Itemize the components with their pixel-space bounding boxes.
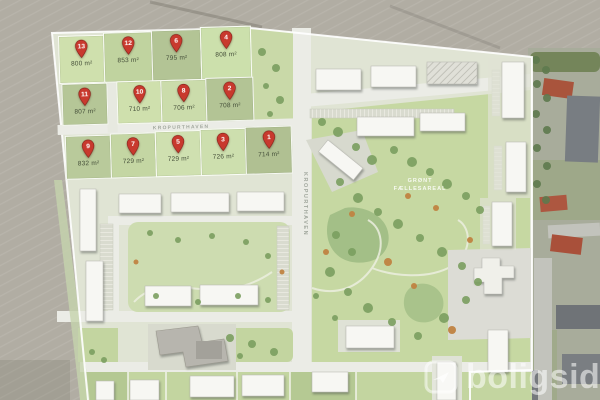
plot-7[interactable]: 7729 m² bbox=[110, 132, 157, 178]
street-label-vertical: KROPURTHAVEN bbox=[302, 172, 308, 236]
pin-number: 11 bbox=[81, 91, 89, 98]
boligsiden-logo-icon bbox=[424, 360, 458, 394]
plot-area-label: 795 m² bbox=[153, 54, 201, 62]
plot-area-label: 708 m² bbox=[207, 102, 253, 110]
map-pin-icon[interactable]: 7 bbox=[126, 137, 141, 156]
map-pin-icon[interactable]: 12 bbox=[121, 36, 136, 55]
map-pin-icon[interactable]: 5 bbox=[171, 134, 186, 153]
map-pin-icon[interactable]: 4 bbox=[218, 30, 233, 49]
plot-area-label: 729 m² bbox=[156, 155, 200, 163]
plot-4[interactable]: 4808 m² bbox=[200, 26, 252, 80]
plot-area-label: 832 m² bbox=[66, 160, 110, 168]
plot-area-label: 808 m² bbox=[202, 51, 251, 59]
pin-number: 12 bbox=[124, 40, 132, 47]
common-area-label-line2: FÆLLESAREAL bbox=[394, 186, 447, 192]
map-pin-icon[interactable]: 10 bbox=[132, 85, 147, 104]
plot-9[interactable]: 9832 m² bbox=[65, 135, 112, 180]
plot-area-label: 800 m² bbox=[60, 60, 104, 68]
pin-number: 3 bbox=[221, 137, 225, 144]
plot-8[interactable]: 8706 m² bbox=[160, 79, 207, 123]
map-pin-icon[interactable]: 11 bbox=[77, 87, 92, 106]
pin-number: 10 bbox=[135, 89, 143, 96]
map-pin-icon[interactable]: 13 bbox=[74, 39, 89, 58]
pin-number: 9 bbox=[86, 143, 90, 150]
map-pin-icon[interactable]: 2 bbox=[222, 81, 237, 100]
plot-area-label: 706 m² bbox=[162, 104, 206, 112]
plot-11[interactable]: 11807 m² bbox=[61, 83, 108, 126]
plot-13[interactable]: 13800 m² bbox=[58, 35, 105, 84]
pin-number: 8 bbox=[182, 88, 186, 95]
plot-3[interactable]: 3726 m² bbox=[200, 128, 247, 176]
pin-number: 6 bbox=[174, 38, 178, 45]
watermark-brand: boligsiden bbox=[466, 360, 600, 394]
pin-number: 2 bbox=[228, 85, 232, 92]
map-pin-icon[interactable]: 3 bbox=[216, 132, 231, 151]
plot-10[interactable]: 10710 m² bbox=[116, 80, 162, 124]
plot-area-label: 853 m² bbox=[105, 56, 152, 64]
common-area-label-line1: GRØNT bbox=[408, 178, 433, 184]
map-pin-icon[interactable]: 8 bbox=[176, 83, 191, 102]
site-plan-map: GRØNT FÆLLESAREAL KROPURTHAVEN KROPURTHA… bbox=[0, 0, 600, 400]
plot-1[interactable]: 1714 m² bbox=[245, 126, 293, 175]
plot-6[interactable]: 6795 m² bbox=[151, 29, 202, 81]
pin-number: 1 bbox=[266, 134, 270, 141]
plot-area-label: 710 m² bbox=[118, 105, 161, 113]
plot-area-label: 807 m² bbox=[63, 108, 107, 116]
pin-number: 5 bbox=[176, 139, 180, 146]
plot-area-label: 714 m² bbox=[246, 151, 291, 159]
watermark: boligsiden bbox=[424, 360, 600, 394]
map-pin-icon[interactable]: 9 bbox=[81, 139, 96, 158]
plot-2[interactable]: 2708 m² bbox=[205, 77, 254, 122]
plot-area-label: 729 m² bbox=[111, 157, 155, 165]
map-pin-icon[interactable]: 6 bbox=[169, 34, 184, 53]
pin-number: 13 bbox=[77, 43, 85, 50]
plot-12[interactable]: 12853 m² bbox=[103, 31, 153, 82]
pin-number: 4 bbox=[224, 34, 228, 41]
map-pin-icon[interactable]: 1 bbox=[261, 130, 276, 149]
plot-5[interactable]: 5729 m² bbox=[155, 130, 202, 177]
pin-number: 7 bbox=[131, 141, 135, 148]
plot-area-label: 726 m² bbox=[201, 153, 245, 161]
